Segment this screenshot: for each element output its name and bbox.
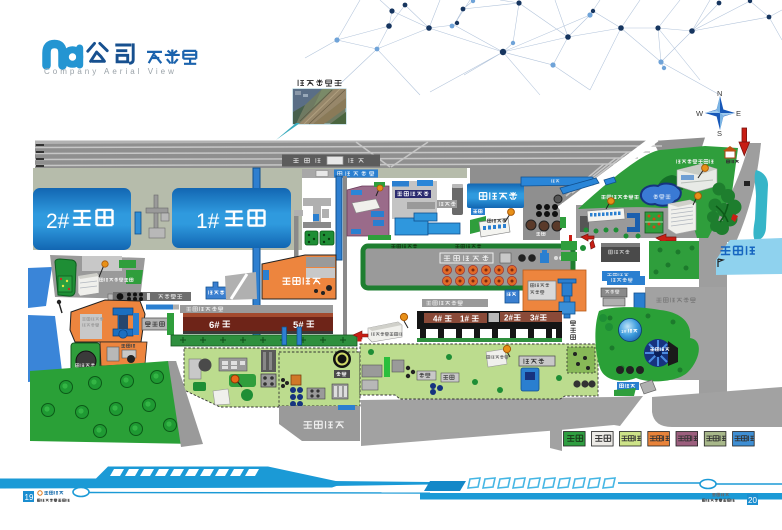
svg-text:Company Aerial View: Company Aerial View bbox=[44, 67, 177, 76]
svg-text:E: E bbox=[736, 109, 741, 118]
svg-text:6#: 6# bbox=[209, 320, 220, 331]
svg-text:N: N bbox=[717, 89, 722, 98]
svg-text:2#: 2# bbox=[504, 314, 513, 323]
svg-text:1#: 1# bbox=[460, 315, 469, 324]
svg-text:19: 19 bbox=[25, 493, 34, 502]
svg-text:1#: 1# bbox=[196, 210, 220, 233]
svg-text:S: S bbox=[717, 129, 722, 138]
svg-text:4#: 4# bbox=[433, 315, 442, 324]
svg-text:W: W bbox=[696, 109, 704, 118]
svg-text:1#: 1# bbox=[621, 329, 627, 335]
svg-text:2#: 2# bbox=[46, 210, 70, 233]
svg-text:3#: 3# bbox=[530, 314, 539, 323]
svg-text:20: 20 bbox=[748, 496, 757, 505]
